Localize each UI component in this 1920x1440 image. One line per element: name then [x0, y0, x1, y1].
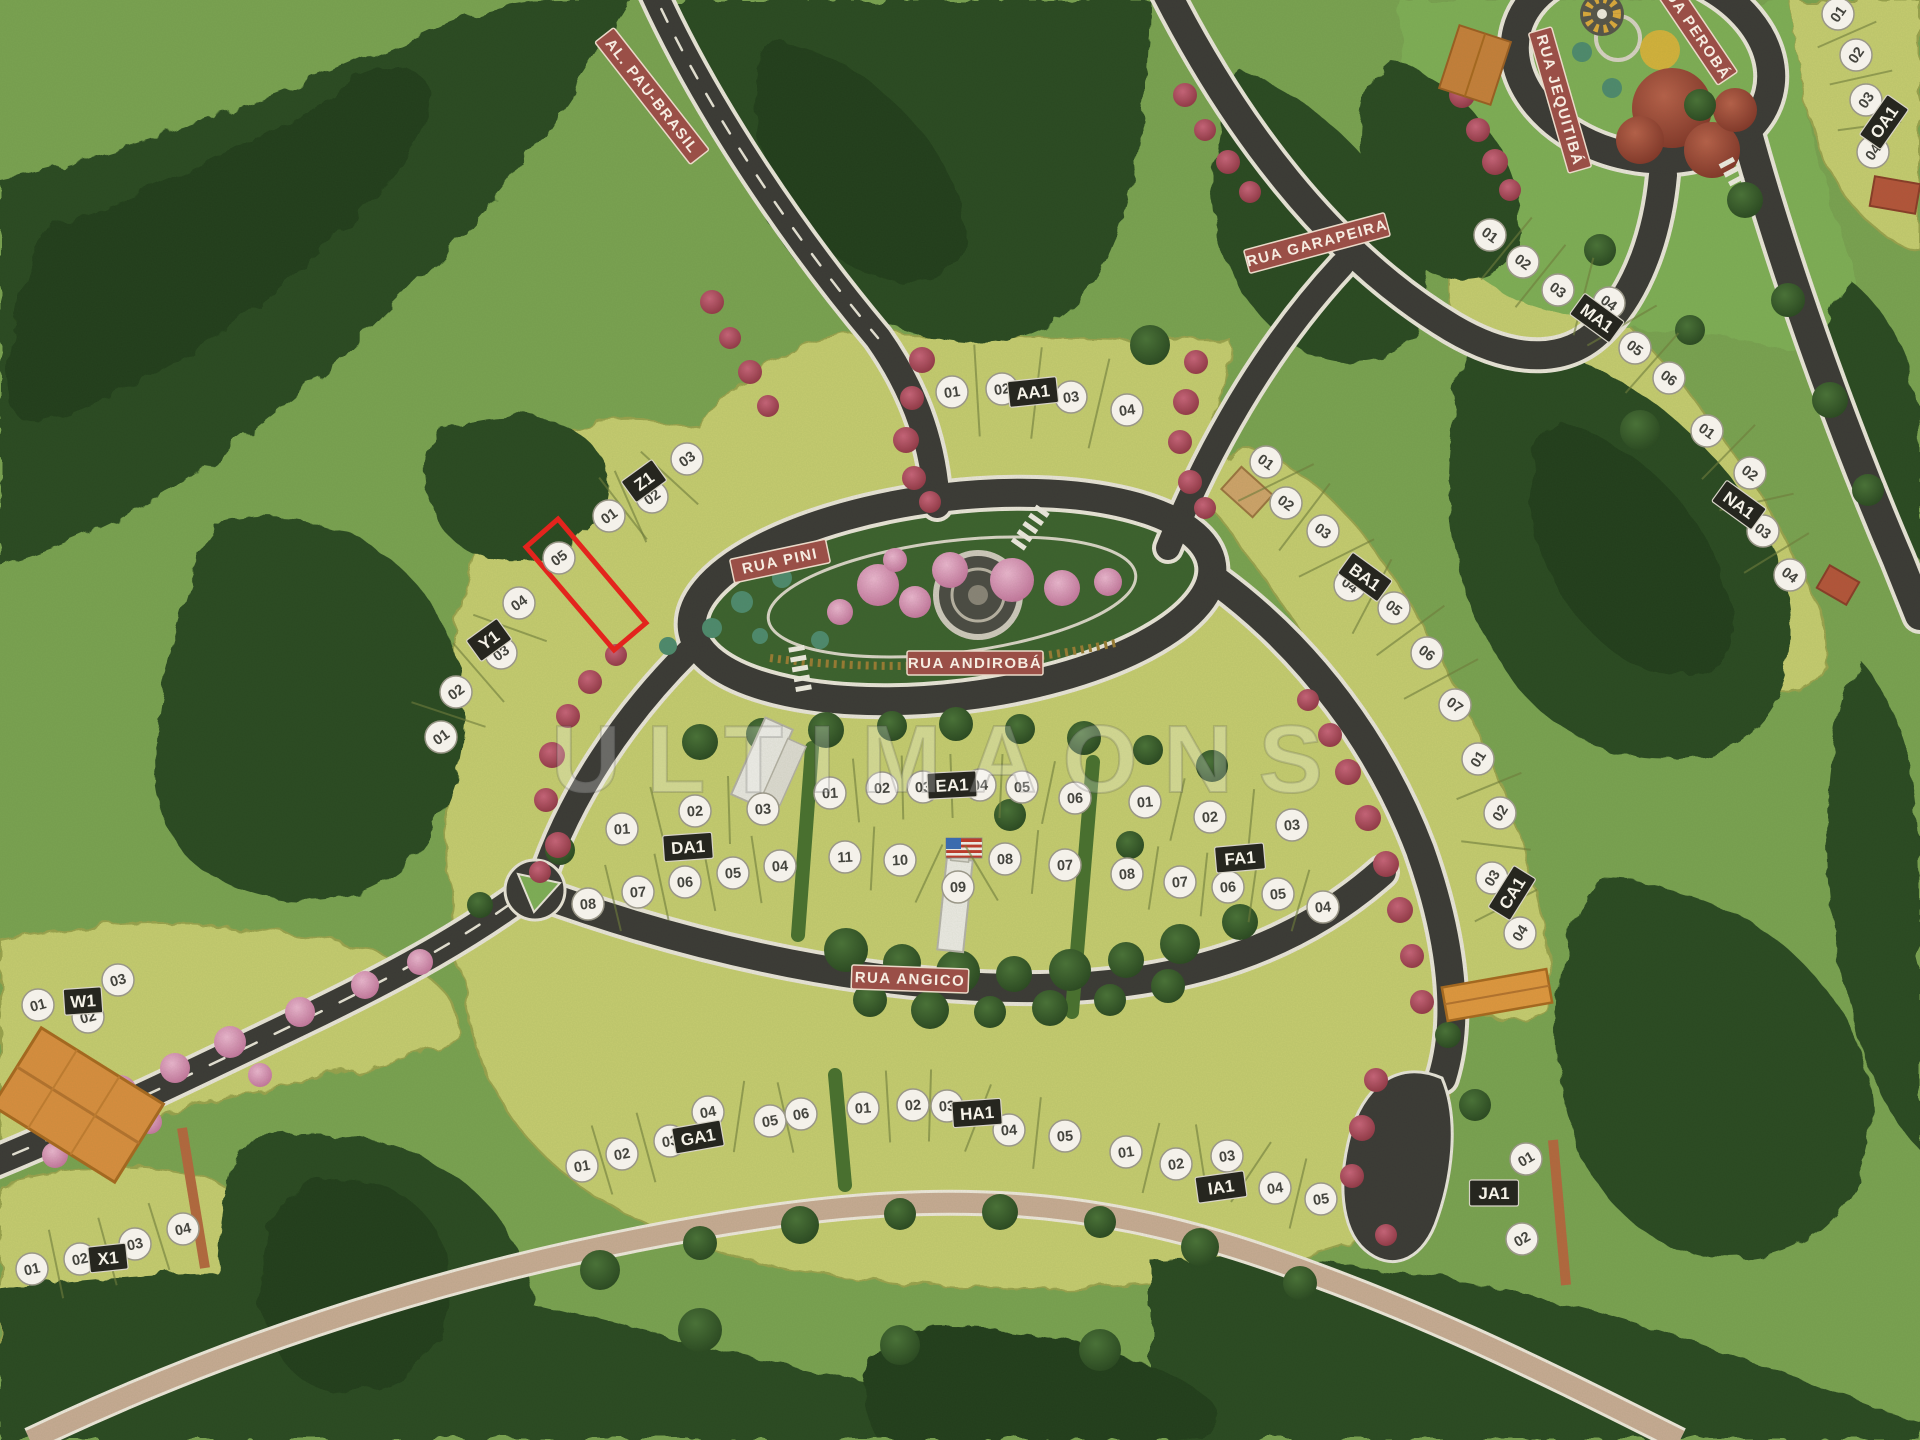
svg-text:04: 04: [1118, 402, 1136, 420]
lot-badge-IA1-01: 01: [1110, 1136, 1142, 1168]
lot-badge-FA1-07: 07: [1164, 866, 1196, 898]
svg-text:X1: X1: [97, 1248, 120, 1269]
lot-badge-X1-04: 04: [167, 1213, 199, 1245]
svg-text:HA1: HA1: [959, 1103, 994, 1124]
block-plaque-FA1: FA1: [1214, 843, 1265, 873]
svg-text:02: 02: [1167, 1156, 1185, 1174]
lot-badge-NA1-02: 02: [1734, 457, 1766, 489]
block-plaque-AA1: AA1: [1007, 377, 1058, 408]
svg-text:03: 03: [1062, 389, 1080, 407]
svg-text:RUA ANDIROBÁ: RUA ANDIROBÁ: [908, 655, 1042, 672]
lot-badge-Z1-05: 05: [543, 542, 575, 574]
svg-text:AA1: AA1: [1015, 381, 1051, 403]
lot-badge-GA1-02: 02: [606, 1138, 638, 1170]
lot-badge-Z1-01: 01: [593, 500, 625, 532]
svg-text:01: 01: [23, 1260, 42, 1279]
svg-text:04: 04: [771, 858, 788, 875]
svg-text:02: 02: [71, 1250, 90, 1269]
lot-badge-X1-01: 01: [16, 1253, 48, 1285]
svg-text:04: 04: [1266, 1180, 1284, 1198]
block-plaque-X1: X1: [88, 1243, 129, 1273]
lot-badge-MA1-01: 01: [1474, 219, 1506, 251]
svg-text:01: 01: [613, 821, 630, 838]
lot-badge-AA1-04: 04: [1111, 394, 1143, 426]
lot-badge-MA1-05: 05: [1619, 332, 1651, 364]
svg-text:06: 06: [1219, 879, 1236, 896]
svg-text:04: 04: [1314, 899, 1331, 916]
lot-badge-Y1-04: 04: [503, 587, 535, 619]
lot-badge-FA1-05: 05: [1262, 878, 1294, 910]
lot-badge-BA1-06: 06: [1411, 637, 1443, 669]
svg-text:03: 03: [126, 1235, 145, 1254]
svg-text:08: 08: [1118, 866, 1135, 883]
lot-badge-FA1-06: 06: [1212, 871, 1244, 903]
svg-text:DA1: DA1: [670, 837, 705, 858]
svg-text:11: 11: [837, 850, 853, 867]
lot-badge-EA1-11: 11: [829, 841, 861, 873]
lot-badge-NA1-01: 01: [1691, 415, 1723, 447]
svg-text:02: 02: [904, 1097, 921, 1114]
lot-badge-Y1-01: 01: [425, 721, 457, 753]
lot-badge-EA1-07: 07: [1049, 849, 1081, 881]
lot-badge-HA1-02: 02: [897, 1089, 929, 1121]
svg-text:01: 01: [573, 1158, 592, 1177]
svg-text:W1: W1: [70, 991, 97, 1012]
svg-text:03: 03: [1218, 1148, 1236, 1166]
lot-badge-BA1-02: 02: [1270, 487, 1302, 519]
lot-badge-Z1-03: 03: [671, 443, 703, 475]
lot-badge-DA1-08: 08: [572, 888, 604, 920]
svg-text:03: 03: [1283, 817, 1300, 834]
lot-badge-OA1-02: 02: [1840, 39, 1872, 71]
svg-text:10: 10: [892, 853, 909, 870]
svg-text:04: 04: [1000, 1122, 1017, 1139]
lot-badge-MA1-03: 03: [1542, 274, 1574, 306]
svg-text:04: 04: [699, 1104, 718, 1123]
lot-badge-JA1-02: 02: [1506, 1223, 1538, 1255]
lot-badge-FA1-04: 04: [1307, 891, 1339, 923]
svg-text:01: 01: [1117, 1144, 1135, 1162]
lot-badge-DA1-07: 07: [622, 876, 654, 908]
lot-badge-MA1-06: 06: [1653, 362, 1685, 394]
site-model-photo: 01020305Z101020304Y1010203W101020304X101…: [0, 0, 1920, 1440]
lot-badge-W1-03: 03: [102, 964, 134, 996]
block-plaque-W1: W1: [63, 987, 103, 1016]
svg-text:FA1: FA1: [1224, 848, 1257, 870]
lot-badge-EA1-10: 10: [884, 844, 916, 876]
lot-badge-Y1-02: 02: [440, 676, 472, 708]
svg-text:07: 07: [1057, 858, 1074, 875]
svg-text:06: 06: [792, 1106, 811, 1125]
lot-badge-DA1-04: 04: [764, 850, 796, 882]
lot-badge-EA1-09: 09: [942, 871, 974, 903]
svg-text:JA1: JA1: [1478, 1184, 1509, 1203]
svg-text:07: 07: [1171, 874, 1188, 891]
lot-badge-BA1-05: 05: [1378, 592, 1410, 624]
lot-badge-CA1-02: 02: [1484, 797, 1516, 829]
svg-text:07: 07: [629, 884, 646, 901]
svg-text:05: 05: [761, 1113, 780, 1132]
lot-badge-GA1-06: 06: [785, 1098, 817, 1130]
lot-badge-BA1-01: 01: [1250, 446, 1282, 478]
lot-badge-AA1-01: 01: [936, 376, 968, 408]
svg-text:05: 05: [1312, 1191, 1330, 1209]
svg-text:08: 08: [579, 896, 596, 913]
lot-badge-EA1-08: 08: [989, 843, 1021, 875]
lot-badge-W1-01: 01: [22, 989, 54, 1021]
lot-badge-IA1-02: 02: [1160, 1148, 1192, 1180]
block-plaque-JA1: JA1: [1470, 1180, 1519, 1206]
lot-badge-JA1-01: 01: [1510, 1143, 1542, 1175]
block-plaque-DA1: DA1: [663, 832, 714, 861]
lot-badge-GA1-05: 05: [754, 1105, 786, 1137]
road-label-rua-andiroba: RUA ANDIROBÁ: [907, 651, 1043, 675]
lot-badge-CA1-04: 04: [1504, 917, 1536, 949]
svg-text:08: 08: [997, 852, 1014, 869]
svg-text:06: 06: [676, 874, 693, 891]
lot-badge-CA1-01: 01: [1462, 743, 1494, 775]
svg-text:04: 04: [174, 1220, 193, 1239]
watermark-text: ULTIMAONS: [551, 706, 1348, 813]
lot-badge-OA1-01: 01: [1822, 0, 1854, 30]
lot-badge-IA1-03: 03: [1211, 1140, 1243, 1172]
svg-text:IA1: IA1: [1207, 1176, 1236, 1198]
lot-badge-HA1-05: 05: [1049, 1120, 1081, 1152]
svg-text:05: 05: [1056, 1128, 1073, 1145]
lot-badge-MA1-02: 02: [1507, 246, 1539, 278]
lot-badge-FA1-03: 03: [1276, 809, 1308, 841]
lot-badge-IA1-05: 05: [1305, 1183, 1337, 1215]
svg-text:05: 05: [1269, 886, 1286, 903]
lot-badge-IA1-04: 04: [1259, 1172, 1291, 1204]
lot-badge-GA1-01: 01: [566, 1150, 598, 1182]
lot-badge-DA1-06: 06: [669, 866, 701, 898]
svg-text:05: 05: [724, 865, 741, 882]
lot-badge-DA1-01: 01: [606, 813, 638, 845]
lot-badge-BA1-03: 03: [1307, 515, 1339, 547]
lot-badge-FA1-08: 08: [1111, 858, 1143, 890]
lot-badge-HA1-01: 01: [847, 1092, 879, 1124]
lot-badge-BA1-07: 07: [1439, 689, 1471, 721]
road-label-rua-angico: RUA ANGICO: [851, 965, 969, 993]
svg-text:01: 01: [854, 1100, 871, 1117]
svg-text:02: 02: [613, 1146, 632, 1165]
svg-text:01: 01: [943, 384, 961, 402]
block-plaque-HA1: HA1: [952, 1098, 1003, 1127]
lot-badge-NA1-04: 04: [1774, 559, 1806, 591]
lot-badge-DA1-05: 05: [717, 857, 749, 889]
lot-badge-AA1-03: 03: [1055, 381, 1087, 413]
svg-text:09: 09: [950, 880, 967, 897]
site-plan-scene: 01020305Z101020304Y1010203W101020304X101…: [0, 0, 1920, 1440]
